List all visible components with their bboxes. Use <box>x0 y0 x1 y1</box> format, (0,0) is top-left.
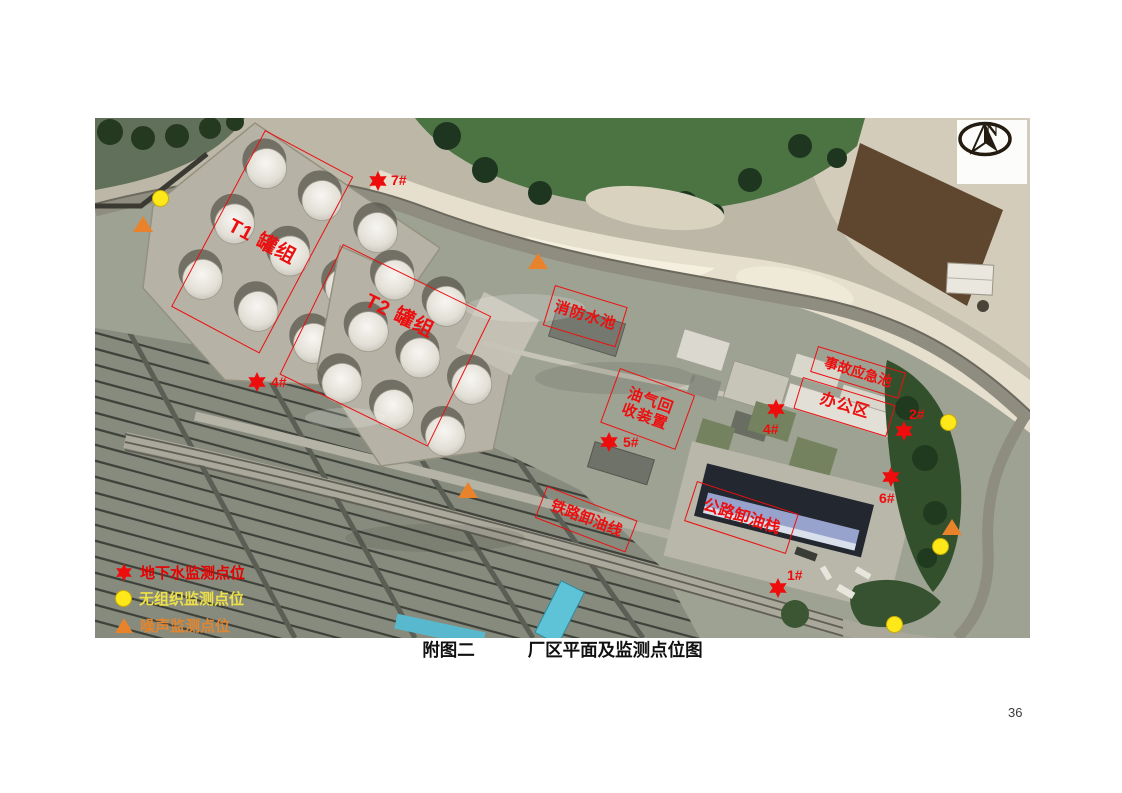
noise-triangle-icon <box>528 253 548 269</box>
noise-triangle-icon <box>133 216 153 232</box>
figure-caption-title: 厂区平面及监测点位图 <box>528 640 703 660</box>
fugitive-circle-icon <box>152 190 169 207</box>
red-star-icon <box>115 564 133 582</box>
fugitive-circle-icon <box>940 414 957 431</box>
satellite-map: T1 罐组 T2 罐组 消防水池 油气回 收装置 事故应急池 办公区 铁路卸油线… <box>95 118 1030 638</box>
figure-caption: 附图二 厂区平面及监测点位图 <box>95 637 1030 662</box>
groundwater-label: 4# <box>271 374 287 390</box>
area-label-t2: T2 罐组 <box>361 290 438 343</box>
groundwater-label: 6# <box>879 490 895 506</box>
groundwater-label: 4# <box>763 421 779 437</box>
legend-label: 噪声监测点位 <box>140 615 230 636</box>
figure-caption-number: 附图二 <box>422 640 475 660</box>
legend-item-groundwater: 地下水监测点位 <box>115 562 245 583</box>
groundwater-label: 5# <box>623 434 639 450</box>
noise-triangle-icon <box>942 519 962 535</box>
legend-label: 地下水监测点位 <box>140 562 245 583</box>
area-label-fire-pool: 消防水池 <box>552 299 618 334</box>
noise-triangle-icon <box>458 482 478 498</box>
legend-label: 无组织监测点位 <box>139 588 244 609</box>
yellow-circle-icon <box>115 590 132 607</box>
fugitive-circle-icon <box>932 538 949 555</box>
page-number: 36 <box>1008 705 1022 720</box>
groundwater-label: 7# <box>391 172 407 188</box>
legend-item-fugitive: 无组织监测点位 <box>115 588 244 609</box>
orange-triangle-icon <box>115 618 133 633</box>
fugitive-circle-icon <box>886 616 903 633</box>
groundwater-label: 1# <box>787 567 803 583</box>
compass-arrow-icon <box>957 120 1013 158</box>
groundwater-label: 2# <box>909 406 925 422</box>
compass: N <box>957 120 1027 184</box>
area-label-t1: T1 罐组 <box>224 214 300 269</box>
legend-item-noise: 噪声监测点位 <box>115 615 230 636</box>
area-label-office: 办公区 <box>817 391 871 424</box>
document-page: T1 罐组 T2 罐组 消防水池 油气回 收装置 事故应急池 办公区 铁路卸油线… <box>0 0 1122 793</box>
